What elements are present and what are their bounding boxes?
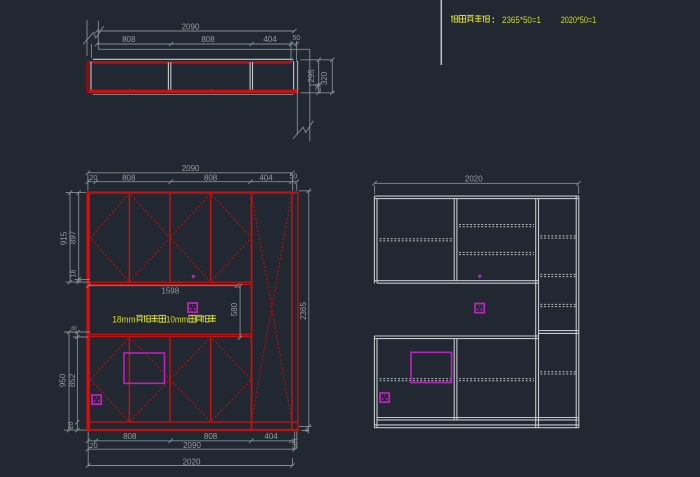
- svg-text:18: 18: [71, 270, 78, 278]
- svg-text:20: 20: [90, 175, 98, 182]
- svg-text:1598: 1598: [161, 286, 179, 295]
- svg-text:2020*50=1: 2020*50=1: [561, 15, 597, 26]
- svg-text:808: 808: [123, 432, 137, 441]
- svg-text:2020: 2020: [183, 457, 201, 466]
- svg-text:18: 18: [72, 326, 79, 334]
- svg-text:18mm: 18mm: [112, 314, 135, 325]
- svg-text:808: 808: [204, 173, 218, 182]
- svg-text:404: 404: [259, 173, 273, 182]
- svg-text:295: 295: [307, 69, 316, 83]
- svg-text:50: 50: [290, 173, 298, 180]
- svg-text:950: 950: [59, 373, 68, 387]
- svg-text:404: 404: [263, 35, 277, 44]
- svg-text:404: 404: [264, 432, 278, 441]
- svg-text:808: 808: [122, 35, 136, 44]
- svg-text:10mm: 10mm: [166, 314, 188, 325]
- svg-text:808: 808: [122, 173, 136, 182]
- svg-text:320: 320: [320, 71, 329, 85]
- svg-text:50: 50: [293, 441, 300, 449]
- svg-text:2090: 2090: [182, 164, 200, 173]
- svg-text:852: 852: [68, 373, 77, 387]
- svg-text:897: 897: [69, 230, 78, 244]
- svg-text:808: 808: [204, 432, 218, 441]
- svg-text:2020: 2020: [465, 174, 483, 183]
- svg-text:50: 50: [292, 35, 300, 42]
- svg-text:915: 915: [60, 231, 69, 245]
- svg-text:20: 20: [68, 422, 75, 430]
- svg-text:808: 808: [201, 35, 215, 44]
- svg-text:2090: 2090: [182, 22, 200, 31]
- svg-text:2365*50=1: 2365*50=1: [502, 15, 541, 26]
- svg-text:580: 580: [230, 302, 239, 316]
- svg-text:2365: 2365: [299, 302, 308, 320]
- svg-text:20: 20: [90, 443, 98, 450]
- svg-text:2090: 2090: [183, 441, 201, 450]
